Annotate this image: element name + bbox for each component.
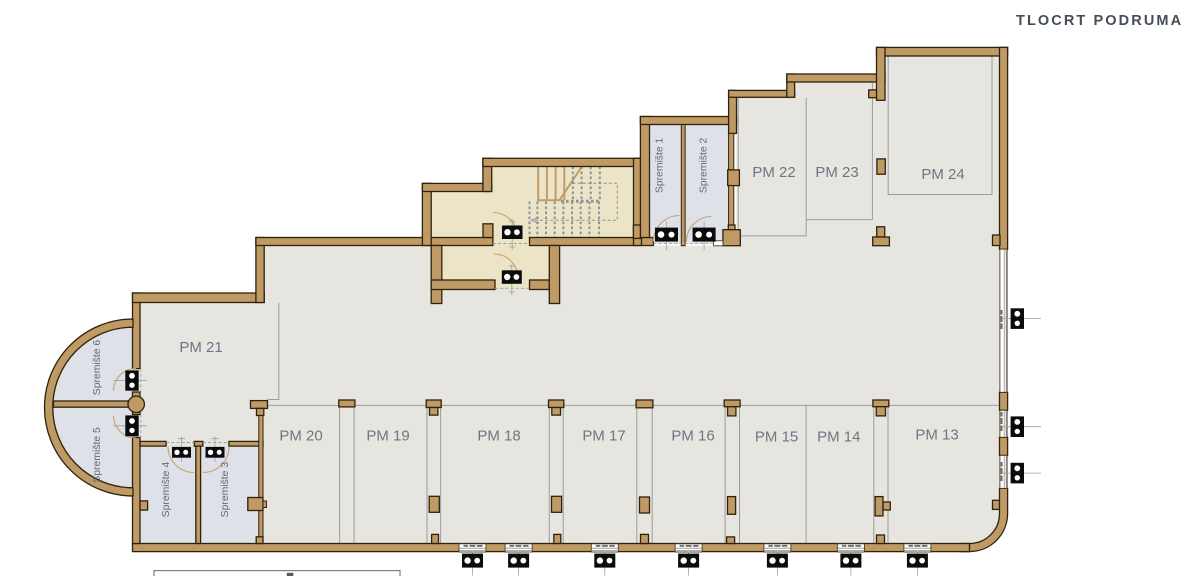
svg-text:TLOCRT PODRUMA: TLOCRT PODRUMA [1016, 13, 1183, 29]
svg-text:PM 15: PM 15 [755, 429, 798, 446]
svg-text:PM 18: PM 18 [477, 428, 520, 445]
svg-text:PM 20: PM 20 [279, 428, 322, 445]
svg-text:PM 16: PM 16 [671, 428, 714, 445]
svg-text:PM 21: PM 21 [179, 339, 222, 356]
svg-text:PM 17: PM 17 [582, 428, 625, 445]
svg-text:Spremište 1: Spremište 1 [655, 137, 666, 193]
svg-text:PM 24: PM 24 [921, 166, 964, 183]
svg-text:PM 13: PM 13 [915, 427, 958, 444]
svg-text:PM 23: PM 23 [815, 164, 858, 181]
svg-text:Spremište 4: Spremište 4 [161, 462, 172, 518]
svg-text:PM 19: PM 19 [366, 428, 409, 445]
svg-text:PM 14: PM 14 [817, 429, 860, 446]
svg-text:Spremište 6: Spremište 6 [92, 340, 103, 396]
svg-text:Spremište 2: Spremište 2 [699, 137, 710, 193]
svg-text:Spremište 5: Spremište 5 [92, 427, 103, 483]
svg-text:PM 22: PM 22 [752, 164, 795, 181]
svg-text:Spremište 3: Spremište 3 [220, 462, 231, 518]
